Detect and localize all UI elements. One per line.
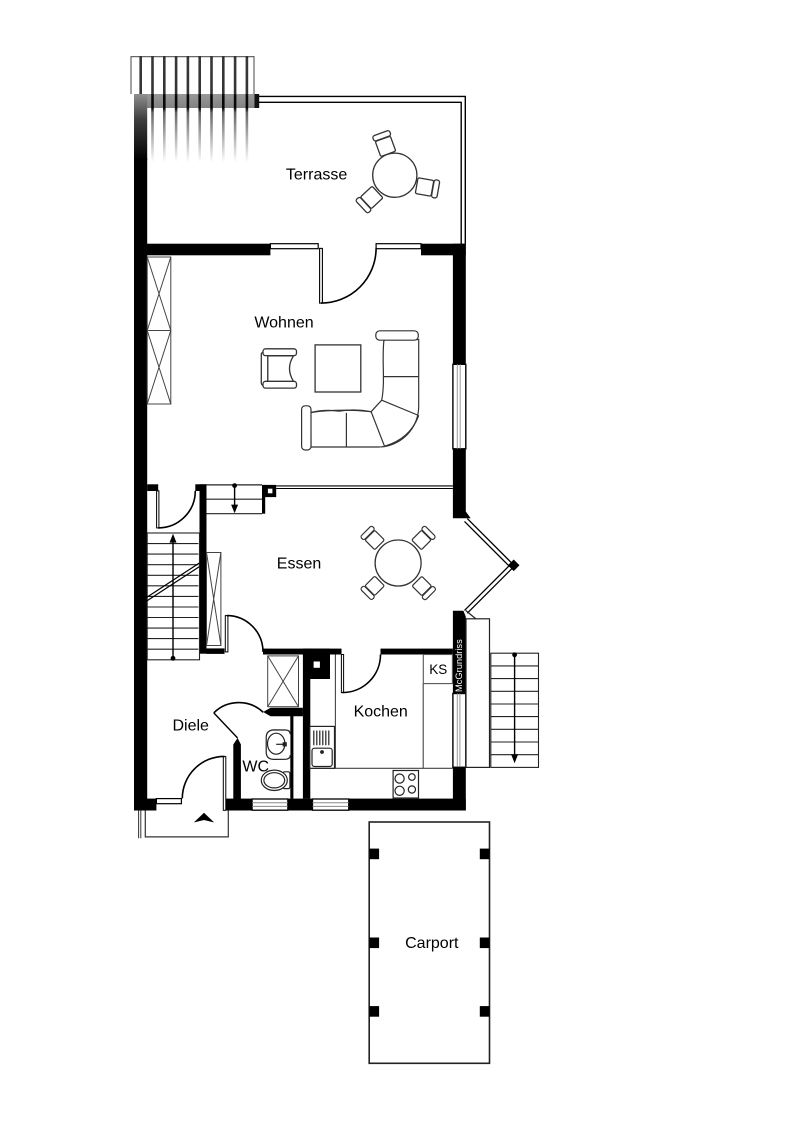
svg-text:McGrundriss: McGrundriss	[454, 639, 464, 692]
svg-text:Essen: Essen	[277, 555, 321, 572]
svg-text:KS: KS	[429, 662, 447, 677]
svg-text:Kochen: Kochen	[354, 703, 408, 720]
svg-text:Carport: Carport	[405, 935, 459, 952]
svg-text:Terrasse: Terrasse	[286, 166, 347, 183]
svg-text:Wohnen: Wohnen	[254, 315, 313, 332]
svg-text:Diele: Diele	[172, 717, 209, 734]
